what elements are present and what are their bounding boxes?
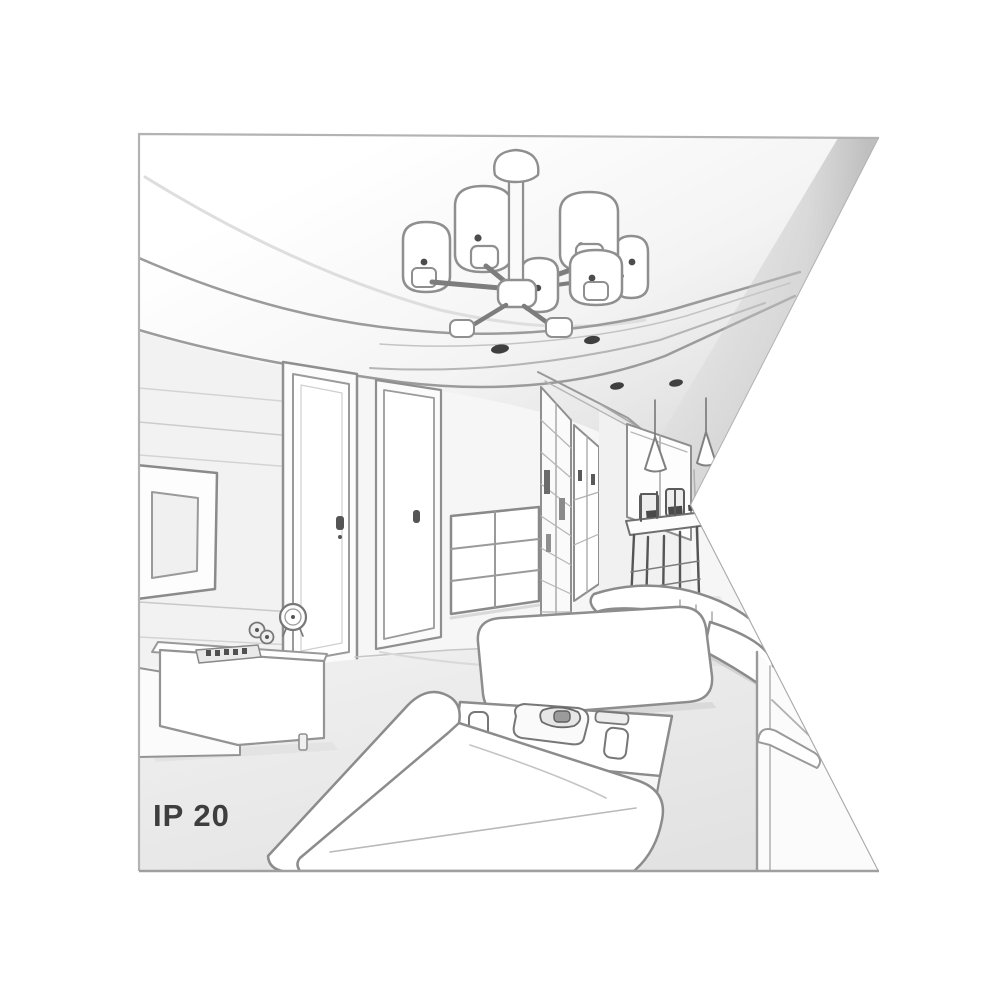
door-handle <box>336 516 344 530</box>
door-far <box>376 380 441 649</box>
product-illustration: IP 20 <box>0 0 1000 1000</box>
lattice-wardrobe <box>541 387 571 651</box>
chandelier-shade <box>455 186 512 272</box>
chest-of-drawers <box>451 507 539 618</box>
serving-tray <box>514 704 589 744</box>
door-handle <box>413 510 420 523</box>
tv <box>137 465 217 599</box>
remote <box>595 711 629 725</box>
hallway-cabinet <box>574 425 599 601</box>
room-sketch <box>0 0 1000 1000</box>
chandelier-canopy <box>494 150 538 182</box>
ip-rating-label: IP 20 <box>153 800 230 831</box>
chandelier-shade <box>570 250 622 305</box>
cup <box>603 727 628 759</box>
chandelier-hub <box>498 280 536 307</box>
